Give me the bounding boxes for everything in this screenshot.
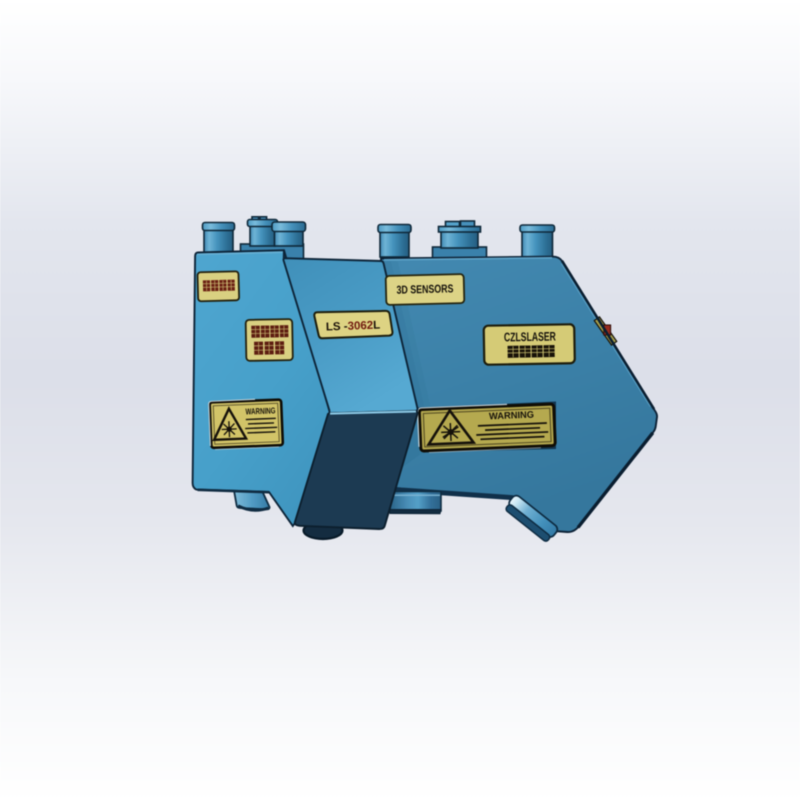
svg-text:WARNING: WARNING — [489, 410, 534, 423]
svg-text:WARNING: WARNING — [245, 405, 276, 416]
svg-text:LS -3062L: LS -3062L — [326, 320, 381, 334]
svg-text:CZLSLASER: CZLSLASER — [504, 330, 556, 345]
svg-text:3D SENSORS: 3D SENSORS — [396, 283, 454, 296]
